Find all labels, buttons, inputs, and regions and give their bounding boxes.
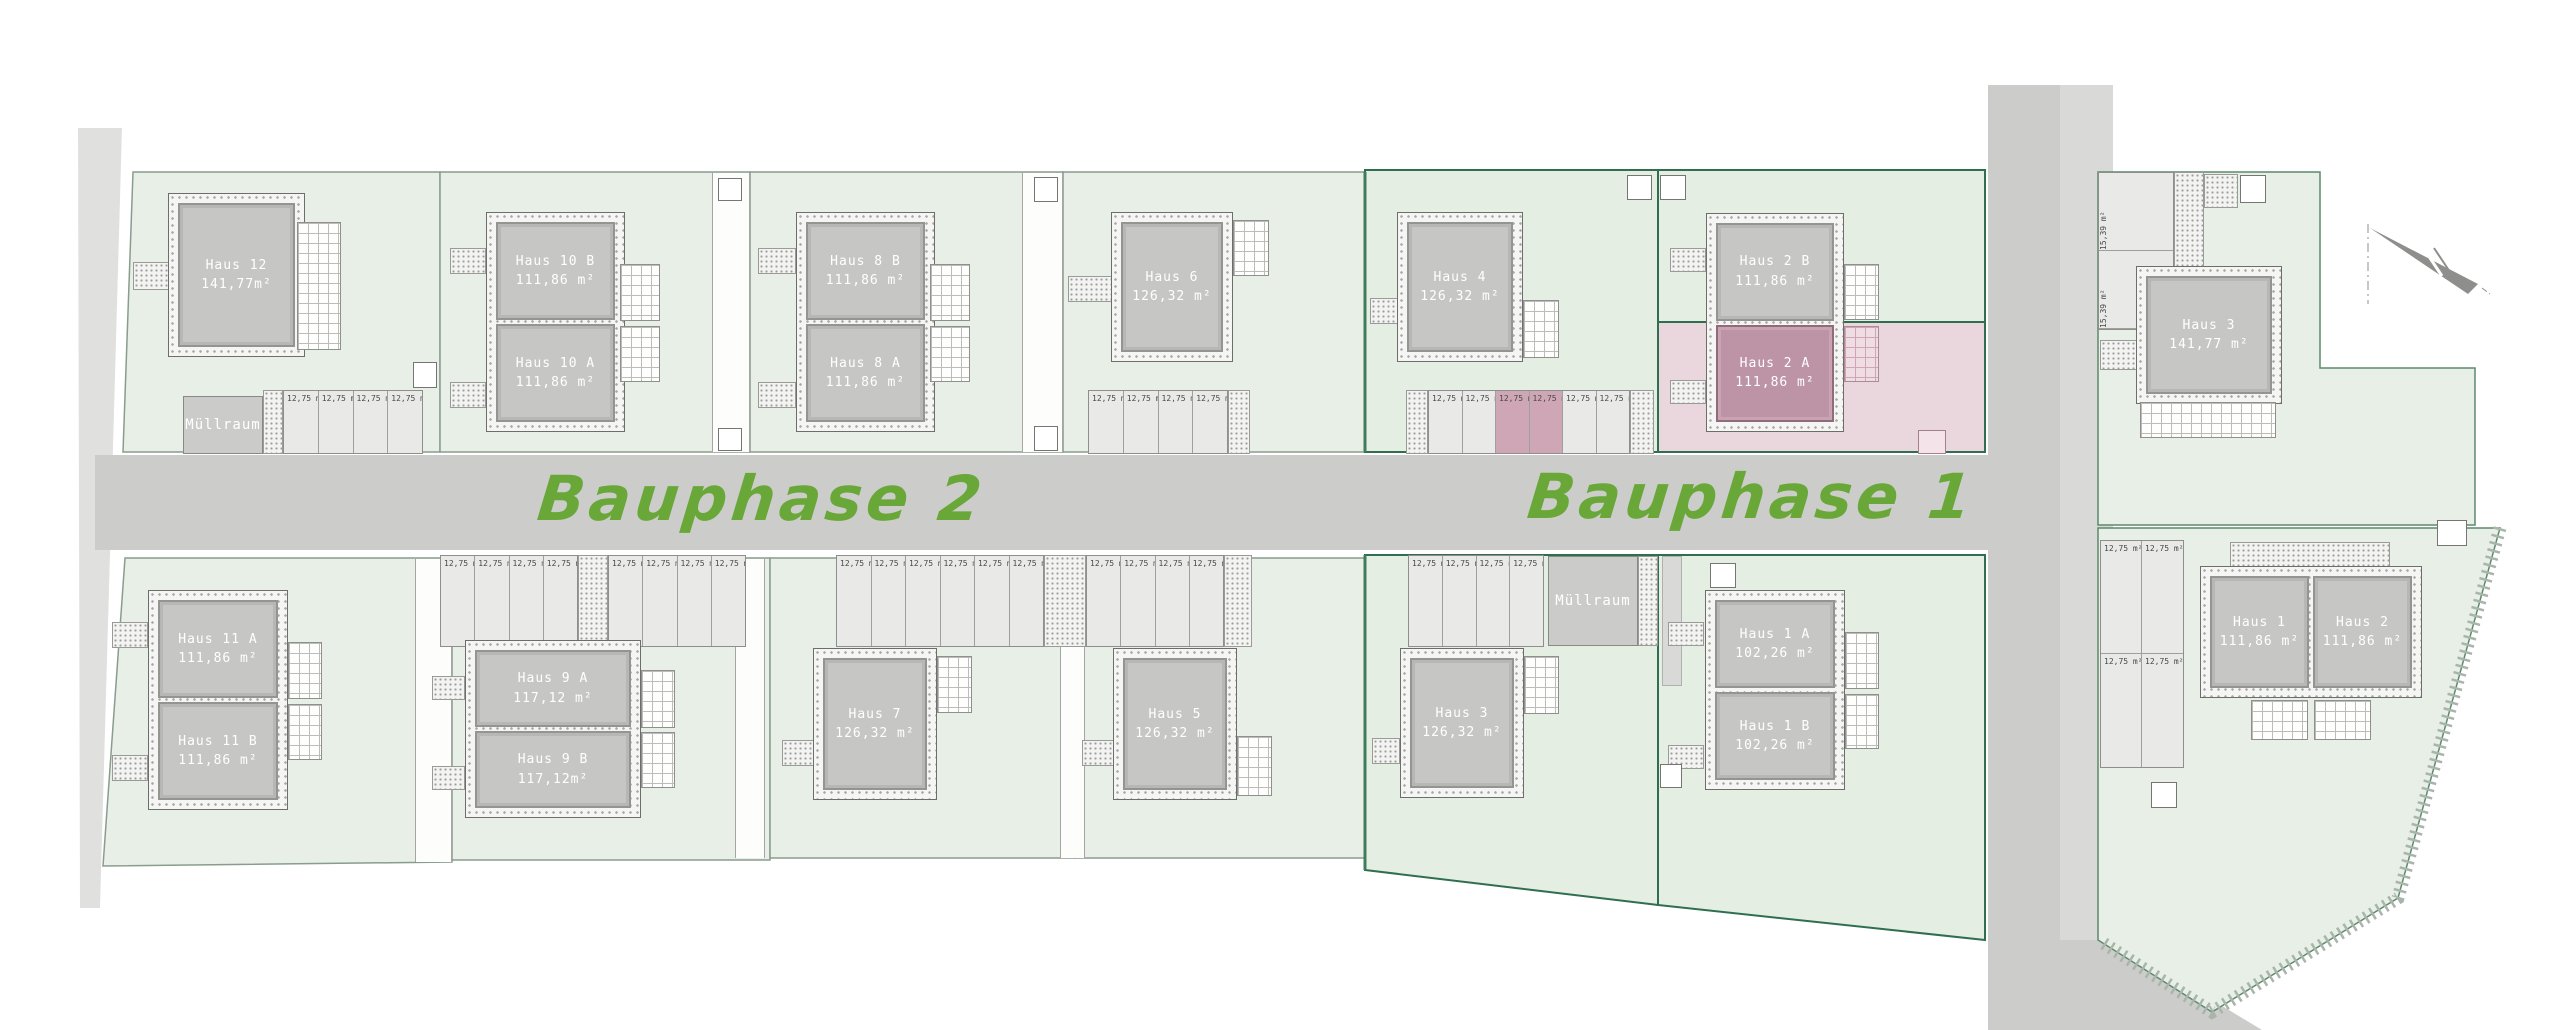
shed-haus12 (413, 362, 437, 388)
parking-row-bauphase1: 12,75 m² 12,75 m² 12,75 m² 12,75 m² (1408, 555, 1544, 647)
shed-corridor-top (718, 178, 742, 201)
parking-row-lower-3: 12,75 m² 12,75 m² 12,75 m² 12,75 m² 12,7… (836, 555, 1044, 647)
house-body: Haus 1 A102,26 m² (1715, 600, 1835, 688)
house-right-haus-3[interactable]: Haus 3141,77 m² (2136, 266, 2282, 404)
house-haus-3[interactable]: Haus 3126,32 m² (1400, 648, 1524, 798)
entrance-walk-haus2a (1670, 380, 1706, 404)
house-haus-9[interactable]: Haus 9 A117,12 m² Haus 9 B117,12m² (465, 640, 641, 818)
house-name: Haus 7 (835, 705, 914, 725)
parking-stall: 12,75 m² (837, 556, 872, 646)
house-name: Haus 1 B (1735, 717, 1814, 737)
house-name: Haus 2 (2323, 613, 2402, 633)
shed-haus1a (1710, 563, 1736, 588)
entrance-walk-haus10a (450, 382, 486, 408)
shed-haus2a (1918, 430, 1946, 454)
house-area: 111,86 m² (2220, 632, 2299, 652)
stall-divider-hatch (1044, 555, 1086, 647)
stall-divider-hatch (263, 390, 283, 454)
house-name: Haus 1 (2220, 613, 2299, 633)
muellraum: Müllraum (183, 396, 263, 454)
terrace-haus2a (1844, 326, 1879, 382)
terrace-haus11b (288, 704, 322, 760)
carport-hatch (2204, 174, 2238, 208)
parking-stall: 12,75 m² (1124, 391, 1159, 453)
stall-divider-hatch (1406, 390, 1428, 454)
house-body: Haus 8 B111,86 m² (806, 222, 925, 320)
house-name: Haus 9 B (518, 750, 589, 770)
parking-row-lower-2: 12,75 m² 12,75 m² 12,75 m² 12,75 m² (608, 555, 746, 647)
house-area: 126,32 m² (835, 724, 914, 744)
parking-stall: 12,75 m² (906, 556, 941, 646)
house-body: Haus 2 B111,86 m² (1716, 223, 1834, 321)
parking-row-haus4: 12,75 m² 12,75 m² 12,75 m² 12,75 m² 12,7… (1428, 390, 1630, 454)
house-area: 111,86 m² (1735, 373, 1814, 393)
house-haus-6[interactable]: Haus 6126,32 m² (1111, 212, 1233, 362)
house-body: Haus 9 A117,12 m² (475, 650, 631, 727)
house-name: Haus 2 A (1735, 354, 1814, 374)
entrance-walk-haus2b (1670, 248, 1706, 272)
house-body: Haus 3126,32 m² (1410, 658, 1514, 788)
parking-stall-highlighted: 12,75 m² (1496, 391, 1530, 453)
house-area: 117,12 m² (513, 689, 592, 709)
terrace-haus9b (641, 732, 675, 788)
parking-stall: 12,75 m² (1443, 556, 1477, 646)
muellraum-label: Müllraum (1555, 593, 1630, 609)
shed-right-bottom (2151, 782, 2177, 808)
house-body: Haus 9 B117,12m² (475, 731, 631, 808)
parking-stall: 12,75 m² (872, 556, 907, 646)
garage-stall: 12,75 m² (2101, 541, 2142, 654)
shed-haus1b (1660, 764, 1682, 788)
shed-corridor-bottom (1034, 426, 1058, 451)
house-area: 141,77m² (201, 275, 272, 295)
house-name: Haus 11 A (178, 630, 257, 650)
parking-stall: 12,75 m² (1597, 391, 1630, 453)
entrance-walk-haus8b (758, 248, 796, 274)
parking-stall: 12,75 m² (678, 556, 712, 646)
house-name: Haus 9 A (513, 669, 592, 689)
parking-stall: 12,75 m² (284, 391, 319, 453)
terrace-haus4 (1523, 300, 1559, 358)
terrace-haus5 (1237, 736, 1272, 796)
parking-stall: 12,75 m² (441, 556, 475, 646)
house-body: Haus 2111,86 m² (2313, 576, 2412, 688)
house-name: Haus 5 (1135, 705, 1214, 725)
terrace-haus8b (930, 264, 970, 321)
entrance-walk-haus12 (133, 262, 169, 290)
muellraum-label: Müllraum (185, 417, 260, 433)
garage-stall: 12,75 m² (2142, 541, 2183, 654)
house-area: 111,86 m² (516, 373, 595, 393)
bauphase-2-label: Bauphase 2 (534, 462, 989, 535)
house-area: 126,32 m² (1135, 724, 1214, 744)
terrace-haus9a (641, 670, 675, 728)
terrace-haus8a (930, 326, 970, 382)
parking-stall: 12,75 m² (544, 556, 577, 646)
shed-haus4 (1627, 175, 1652, 200)
house-body: Haus 8 A111,86 m² (806, 324, 925, 422)
house-area: 111,86 m² (178, 649, 257, 669)
house-area: 111,86 m² (178, 751, 257, 771)
shed-corridor-top (1034, 177, 1058, 202)
entrance-walk-haus11a (112, 622, 148, 648)
terrace-right-haus3 (2140, 402, 2276, 438)
garage-stall: 15,39 m² (2099, 173, 2173, 251)
stall-divider-hatch (1228, 390, 1250, 454)
parking-stall-highlighted: 12,75 m² (1530, 391, 1564, 453)
shed-corridor-bottom (718, 428, 742, 451)
house-haus-2[interactable]: Haus 2 B111,86 m² Haus 2 A111,86 m² (1706, 213, 1844, 432)
house-body: Haus 12141,77m² (178, 203, 295, 347)
parking-stall: 12,75 m² (941, 556, 976, 646)
corridor-haus10-8 (712, 173, 750, 452)
house-area: 117,12m² (518, 770, 589, 790)
house-name: Haus 12 (201, 256, 272, 276)
entrance-walk-right-haus1-2 (2230, 542, 2390, 568)
entrance-walk-haus4 (1370, 298, 1398, 324)
house-name: Haus 4 (1420, 268, 1499, 288)
house-body: Haus 3141,77 m² (2146, 276, 2272, 394)
house-haus-1[interactable]: Haus 1 A102,26 m² Haus 1 B102,26 m² (1705, 590, 1845, 790)
house-haus-12[interactable]: Haus 12141,77m² (168, 193, 305, 357)
entrance-walk-haus11b (112, 755, 148, 781)
house-body: Haus 11 A111,86 m² (158, 600, 278, 698)
house-body: Haus 10 A111,86 m² (496, 324, 615, 422)
terrace-haus10a (620, 326, 660, 382)
house-area: 126,32 m² (1420, 287, 1499, 307)
house-area: 111,86 m² (2323, 632, 2402, 652)
house-area: 102,26 m² (1735, 736, 1814, 756)
house-body: Haus 10 B111,86 m² (496, 222, 615, 320)
parking-stall: 12,75 m² (643, 556, 677, 646)
terrace-right-haus2 (2314, 700, 2371, 740)
house-area: 111,86 m² (826, 373, 905, 393)
parking-stall: 12,75 m² (1510, 556, 1543, 646)
terrace-haus7 (937, 656, 972, 713)
entrance-walk-haus5 (1082, 740, 1114, 766)
house-body-highlighted: Haus 2 A111,86 m² (1716, 325, 1834, 423)
entrance-walk-haus6 (1068, 276, 1112, 302)
parking-stall: 12,75 m² (1156, 556, 1190, 646)
house-body: Haus 5126,32 m² (1123, 658, 1227, 790)
terrace-haus1b (1845, 694, 1879, 749)
house-name: Haus 10 B (516, 252, 595, 272)
garage-block-right-bottom: 12,75 m² 12,75 m² 12,75 m² 12,75 m² (2100, 540, 2184, 768)
parking-stall: 12,75 m² (475, 556, 509, 646)
house-area: 126,32 m² (1132, 287, 1211, 307)
parking-row-haus6: 12,75 m² 12,75 m² 12,75 m² 12,75 m² (1088, 390, 1228, 454)
bauphase-1-label: Bauphase 1 (1524, 460, 1979, 533)
house-haus-5[interactable]: Haus 5126,32 m² (1113, 648, 1237, 800)
house-haus-4[interactable]: Haus 4126,32 m² (1397, 212, 1523, 362)
terrace-haus11a (288, 642, 322, 699)
site-plan: Haus 12141,77m² Haus 10 B111,86 m² Haus … (0, 0, 2560, 1030)
parking-stall: 12,75 m² (1429, 391, 1463, 453)
entrance-walk-haus10b (450, 248, 486, 274)
house-haus-7[interactable]: Haus 7126,32 m² (813, 648, 937, 800)
entrance-walk-haus9a (432, 676, 465, 700)
house-body: Haus 1 B102,26 m² (1715, 692, 1835, 780)
house-area: 126,32 m² (1422, 723, 1501, 743)
house-name: Haus 8 B (826, 252, 905, 272)
parking-stall: 12,75 m² (1193, 391, 1227, 453)
house-area: 111,86 m² (1735, 272, 1814, 292)
parking-stall: 12,75 m² (1190, 556, 1223, 646)
parking-stall: 12,75 m² (354, 391, 389, 453)
parking-row-lower-4: 12,75 m² 12,75 m² 12,75 m² 12,75 m² (1086, 555, 1224, 647)
entrance-walk-haus9b (432, 766, 465, 790)
house-haus-11[interactable]: Haus 11 A111,86 m² Haus 11 B111,86 m² (148, 590, 288, 810)
site-base-map (0, 0, 2560, 1030)
house-area: 111,86 m² (516, 271, 595, 291)
garage-stall: 12,75 m² (2101, 654, 2142, 767)
parking-stall: 12,75 m² (712, 556, 745, 646)
house-body: Haus 6126,32 m² (1121, 222, 1223, 352)
house-body: Haus 4126,32 m² (1407, 222, 1513, 352)
parking-stall: 12,75 m² (1463, 391, 1497, 453)
driveway-haus1 (1662, 556, 1682, 686)
entrance-walk-haus7 (782, 740, 814, 766)
stall-divider-hatch (578, 555, 608, 647)
terrace-haus10b (620, 264, 660, 321)
garage-stall: 12,75 m² (2142, 654, 2183, 767)
parking-row-haus12: 12,75 m² 12,75 m² 12,75 m² 12,75 m² (283, 390, 423, 454)
north-arrow-icon (2356, 218, 2492, 314)
entrance-walk-haus3 (1372, 738, 1400, 764)
house-name: Haus 10 A (516, 354, 595, 374)
house-area: 111,86 m² (826, 271, 905, 291)
house-name: Haus 3 (2169, 316, 2248, 336)
stall-divider-hatch (1638, 556, 1658, 646)
muellraum: Müllraum (1548, 556, 1638, 646)
terrace-haus1a (1845, 632, 1879, 689)
house-name: Haus 2 B (1735, 252, 1814, 272)
terrace-haus2b (1844, 264, 1879, 320)
parking-stall: 12,75 m² (319, 391, 354, 453)
house-name: Haus 11 B (178, 732, 257, 752)
stall-divider-hatch (1630, 390, 1654, 454)
parking-stall: 12,75 m² (975, 556, 1010, 646)
house-area: 141,77 m² (2169, 335, 2248, 355)
parking-stall: 12,75 m² (1089, 391, 1124, 453)
house-body: Haus 11 B111,86 m² (158, 702, 278, 800)
parking-row-lower-1: 12,75 m² 12,75 m² 12,75 m² 12,75 m² (440, 555, 578, 647)
terrace-haus6 (1233, 220, 1269, 276)
entrance-walk-haus8a (758, 382, 796, 408)
stall-divider-hatch (1224, 555, 1252, 647)
shed-right-edge (2437, 520, 2467, 546)
house-haus-10[interactable]: Haus 10 B111,86 m² Haus 10 A111,86 m² (486, 212, 625, 432)
house-name: Haus 6 (1132, 268, 1211, 288)
terrace-right-haus1 (2251, 700, 2308, 740)
parking-stall: 12,75 m² (388, 391, 422, 453)
parking-stall: 12,75 m² (1477, 556, 1511, 646)
house-area: 102,26 m² (1735, 644, 1814, 664)
house-name: Haus 3 (1422, 704, 1501, 724)
entrance-walk-haus1a (1668, 622, 1704, 646)
parking-stall: 12,75 m² (1159, 391, 1194, 453)
shed-haus2 (1660, 175, 1686, 200)
shed-right-top (2240, 175, 2266, 203)
house-haus-8[interactable]: Haus 8 B111,86 m² Haus 8 A111,86 m² (796, 212, 935, 432)
parking-stall: 12,75 m² (1010, 556, 1044, 646)
house-body: Haus 1111,86 m² (2210, 576, 2309, 688)
corridor-haus8-6 (1022, 173, 1063, 452)
parking-stall: 12,75 m² (510, 556, 544, 646)
house-body: Haus 7126,32 m² (823, 658, 927, 790)
parking-stall: 12,75 m² (1409, 556, 1443, 646)
house-right-haus-1-2[interactable]: Haus 1111,86 m² Haus 2111,86 m² (2200, 566, 2422, 698)
house-name: Haus 1 A (1735, 625, 1814, 645)
parking-stall: 12,75 m² (1563, 391, 1597, 453)
parking-stall: 12,75 m² (1121, 556, 1155, 646)
parking-stall: 12,75 m² (609, 556, 643, 646)
house-name: Haus 8 A (826, 354, 905, 374)
parking-stall: 12,75 m² (1087, 556, 1121, 646)
terrace-haus12 (297, 222, 341, 350)
terrace-haus3 (1524, 656, 1559, 714)
